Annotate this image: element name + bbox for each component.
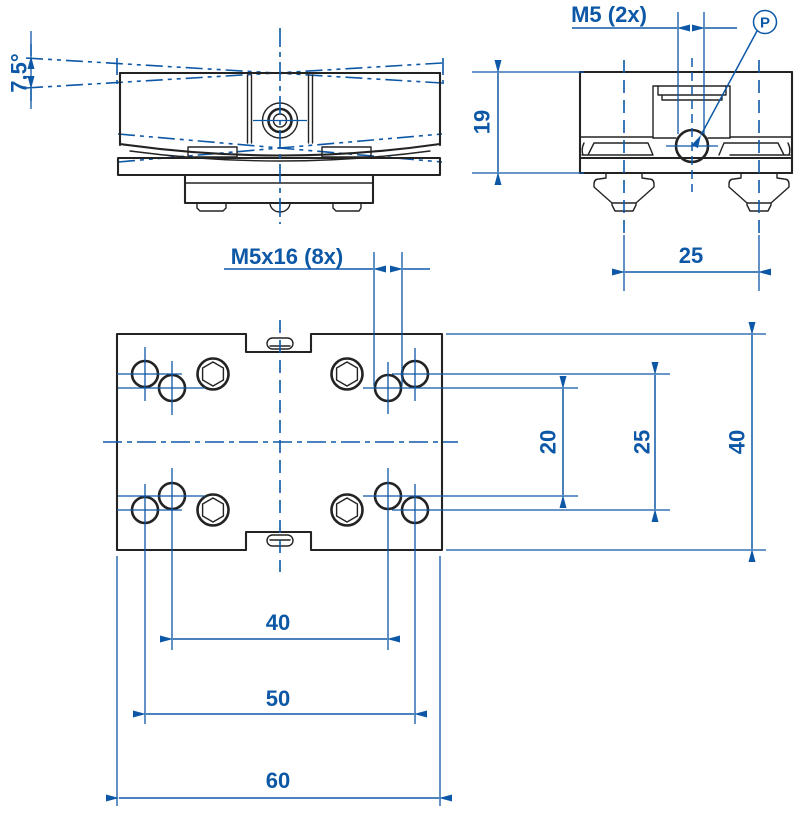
hex-screw: [332, 495, 363, 526]
hex-screw: [198, 495, 229, 526]
depth-40-label: 40: [725, 430, 750, 454]
dimension-hole-pitch-y-inner-20: 20: [363, 388, 578, 496]
tilt-angle-label: 7,5°: [7, 53, 32, 92]
pitch-25-label: 25: [630, 430, 655, 454]
dimension-foot-spacing-25: 25: [625, 243, 758, 272]
m5x16-thread-label: M5x16 (8x): [231, 244, 344, 269]
plan-view: M5x16 (8x) 20 25 40 40: [103, 244, 766, 806]
p-port-label: P: [760, 15, 770, 32]
m5-thread-label: M5 (2x): [571, 2, 647, 27]
pitch-50-label: 50: [266, 686, 290, 711]
dimension-plate-depth-40: 40: [446, 334, 766, 550]
technical-drawing: 7,5°: [0, 0, 800, 816]
pitch-40-label: 40: [266, 610, 290, 635]
side-body-outline: [580, 72, 792, 173]
hex-screw: [198, 359, 229, 390]
width-60-label: 60: [266, 768, 290, 793]
side-view: M5 (2x) P 19 25: [470, 2, 793, 291]
front-base: [118, 158, 440, 212]
front-view: 7,5°: [7, 28, 444, 224]
dimension-plate-width-60: 60: [117, 556, 440, 806]
dimension-tilt-angle: 7,5°: [7, 31, 32, 109]
height-19-label: 19: [470, 110, 495, 134]
pitch-20-label: 20: [536, 430, 561, 454]
hole-crosshairs: [117, 347, 415, 510]
dimension-m5x16-thread: M5x16 (8x): [224, 244, 430, 386]
technical-drawing-page: 7,5°: [0, 0, 800, 816]
dimension-height-19: 19: [470, 72, 585, 173]
hex-screw: [332, 359, 363, 390]
foot-spacing-25-label: 25: [679, 243, 703, 268]
dimension-hole-pitch-x-inner-40: 40: [172, 468, 388, 650]
